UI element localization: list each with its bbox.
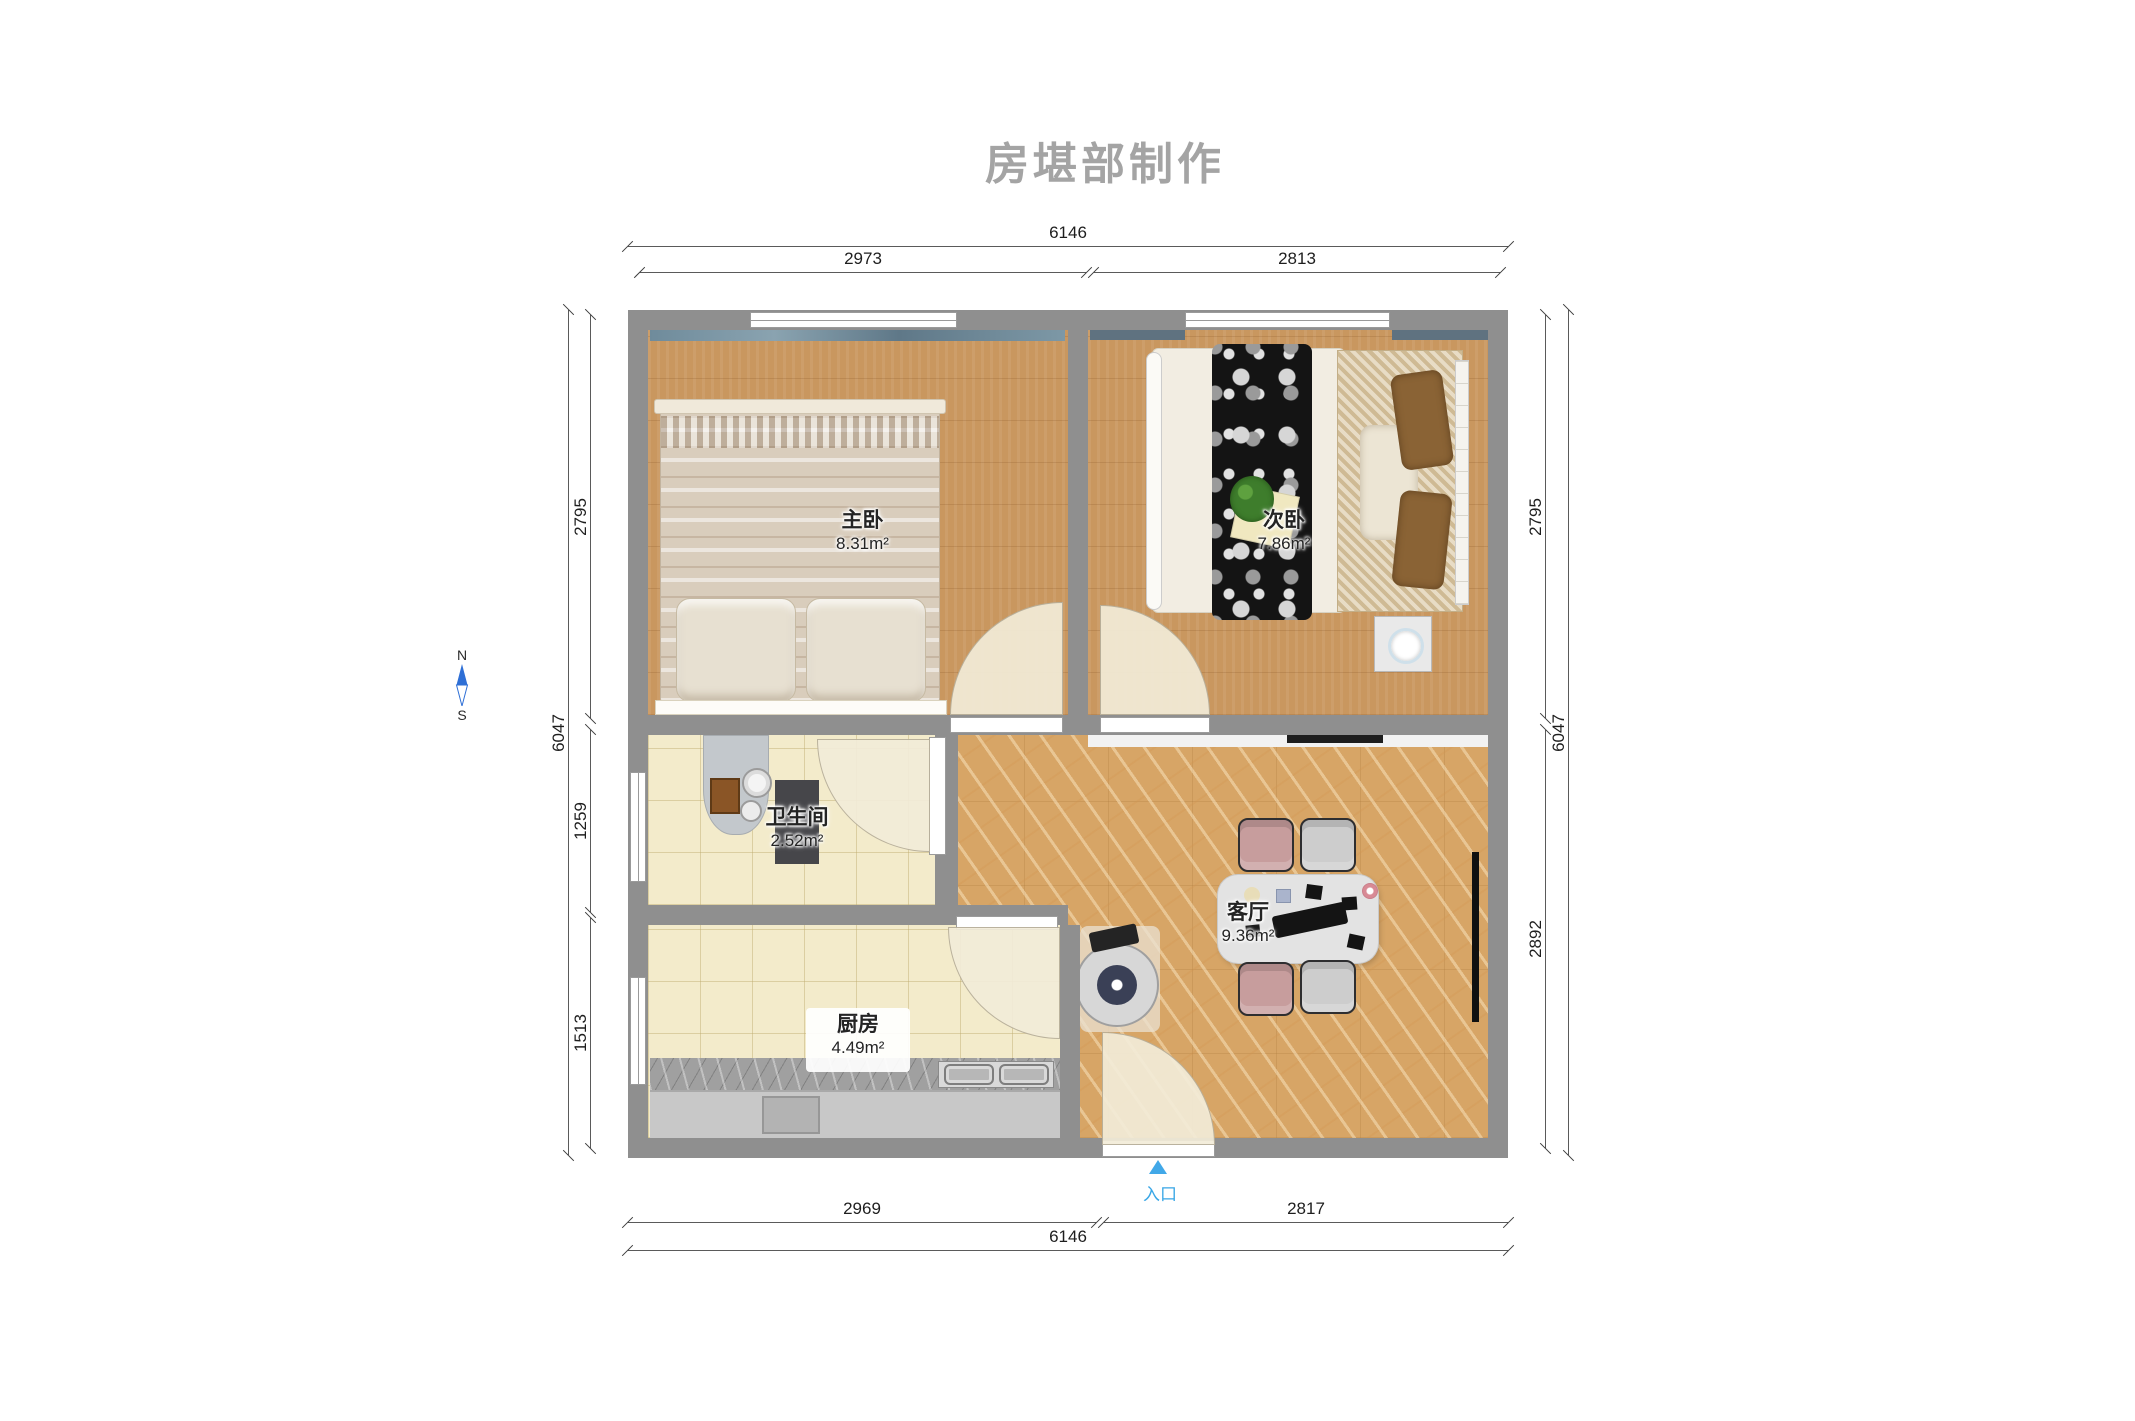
wall-between-bedrooms [1068, 330, 1088, 735]
room-name: 卫生间 [740, 805, 854, 831]
room-area: 2.52m² [740, 831, 854, 851]
compass: N S [438, 648, 486, 722]
sink-basin-left [944, 1064, 994, 1085]
room-label-second-bedroom: 次卧 7.86m² [1228, 508, 1340, 555]
dim-label: 2795 [571, 498, 591, 536]
room-name: 厨房 [802, 1012, 914, 1038]
dim-left-overall: 6047 [568, 310, 569, 1155]
dim-right-segment-1: 2892 [1545, 730, 1546, 1148]
dim-label: 1259 [571, 802, 591, 840]
page-title: 房堪部制作 [845, 128, 1365, 192]
dim-label: 6047 [1549, 714, 1569, 752]
wardrobe-side-trim [1455, 360, 1469, 605]
dim-label: 6047 [549, 714, 569, 752]
second-curtain-strip-right [1392, 330, 1488, 340]
wall-bottom [628, 1138, 1508, 1158]
room-name: 次卧 [1228, 508, 1340, 534]
dim-label: 2813 [1278, 249, 1316, 269]
dim-label: 6146 [1049, 223, 1087, 243]
bathroom-door-leaf [929, 737, 946, 855]
second-bed-headboard [1146, 352, 1162, 610]
room-area: 9.36m² [1192, 926, 1304, 946]
room-name: 客厅 [1192, 900, 1304, 926]
dim-top-left-segment: 2973 [640, 272, 1086, 273]
entrance-arrow-icon [1149, 1160, 1167, 1174]
room-name: 主卧 [805, 508, 920, 534]
dining-chair [1300, 818, 1356, 872]
room-label-master-bedroom: 主卧 8.31m² [805, 508, 920, 555]
dining-chair [1300, 960, 1356, 1014]
dim-top-overall: 6146 [628, 246, 1508, 247]
kitchen-lower-cabinet [650, 1090, 1060, 1138]
vanity-sink-large [742, 768, 772, 798]
dim-left-segment-0: 2795 [590, 315, 591, 718]
wall-kitchen-right [1060, 925, 1080, 1138]
dim-right-segment-0: 2795 [1545, 315, 1546, 718]
table-item [1342, 896, 1358, 910]
dim-bottom-overall: 6146 [628, 1250, 1508, 1251]
master-curtain-strip [650, 330, 1065, 341]
cabinet-inset-panel [762, 1096, 820, 1134]
master-bedroom-window [750, 312, 957, 328]
dim-bottom-left-segment: 2969 [628, 1222, 1096, 1223]
wall-right [1488, 310, 1508, 1158]
dim-label: 2795 [1526, 498, 1546, 536]
washing-machine-drum [1097, 965, 1137, 1005]
dim-left-segment-2: 1513 [590, 918, 591, 1148]
dim-label: 2973 [844, 249, 882, 269]
master-pillow-right [806, 598, 926, 702]
bathroom-window [630, 772, 646, 882]
tv-console-bar [1287, 735, 1383, 743]
room-area: 7.86m² [1228, 534, 1340, 554]
room-label-bathroom: 卫生间 2.52m² [740, 805, 854, 852]
master-pillow-left [676, 598, 796, 702]
dim-label: 2892 [1526, 920, 1546, 958]
room-area: 8.31m² [805, 534, 920, 554]
compass-needle-icon [451, 664, 473, 706]
wall-below-bedrooms [648, 715, 1488, 735]
compass-south-label: S [438, 708, 486, 722]
second-bedroom-window [1185, 312, 1390, 328]
nightstand-plate [1388, 628, 1424, 664]
table-item [1347, 933, 1366, 950]
second-curtain-strip-left [1090, 330, 1185, 340]
vanity-wood-box [710, 778, 740, 814]
wardrobe-pillow-bottom [1391, 490, 1453, 591]
dim-left-segment-1: 1259 [590, 730, 591, 912]
table-item [1305, 884, 1323, 900]
kitchen-window [630, 977, 646, 1085]
table-item [1362, 883, 1378, 899]
dining-chair [1238, 818, 1294, 872]
dim-label: 2817 [1287, 1199, 1325, 1219]
sink-basin-right [999, 1064, 1049, 1085]
room-label-living-room: 客厅 9.36m² [1192, 900, 1304, 947]
dim-label: 6146 [1049, 1227, 1087, 1247]
compass-north-label: N [438, 648, 486, 662]
dim-right-overall: 6047 [1568, 310, 1569, 1155]
master-bed-fringe [661, 416, 939, 448]
dining-chair [1238, 962, 1294, 1016]
dim-top-right-segment: 2813 [1094, 272, 1500, 273]
dim-label: 2969 [843, 1199, 881, 1219]
wall-media-bar [1472, 852, 1479, 1022]
second-bedroom-door-leaf [1100, 717, 1210, 733]
master-bed-headboard [654, 399, 946, 414]
room-area: 4.49m² [802, 1038, 914, 1058]
entrance-label: 入口 [1130, 1180, 1190, 1205]
floorplan-canvas: 房堪部制作 [0, 0, 2135, 1421]
master-bedroom-door-leaf [950, 717, 1063, 733]
room-label-kitchen: 厨房 4.49m² [802, 1012, 914, 1059]
master-bed-footboard [655, 700, 947, 715]
dim-bottom-right-segment: 2817 [1104, 1222, 1508, 1223]
dim-label: 1513 [571, 1014, 591, 1052]
